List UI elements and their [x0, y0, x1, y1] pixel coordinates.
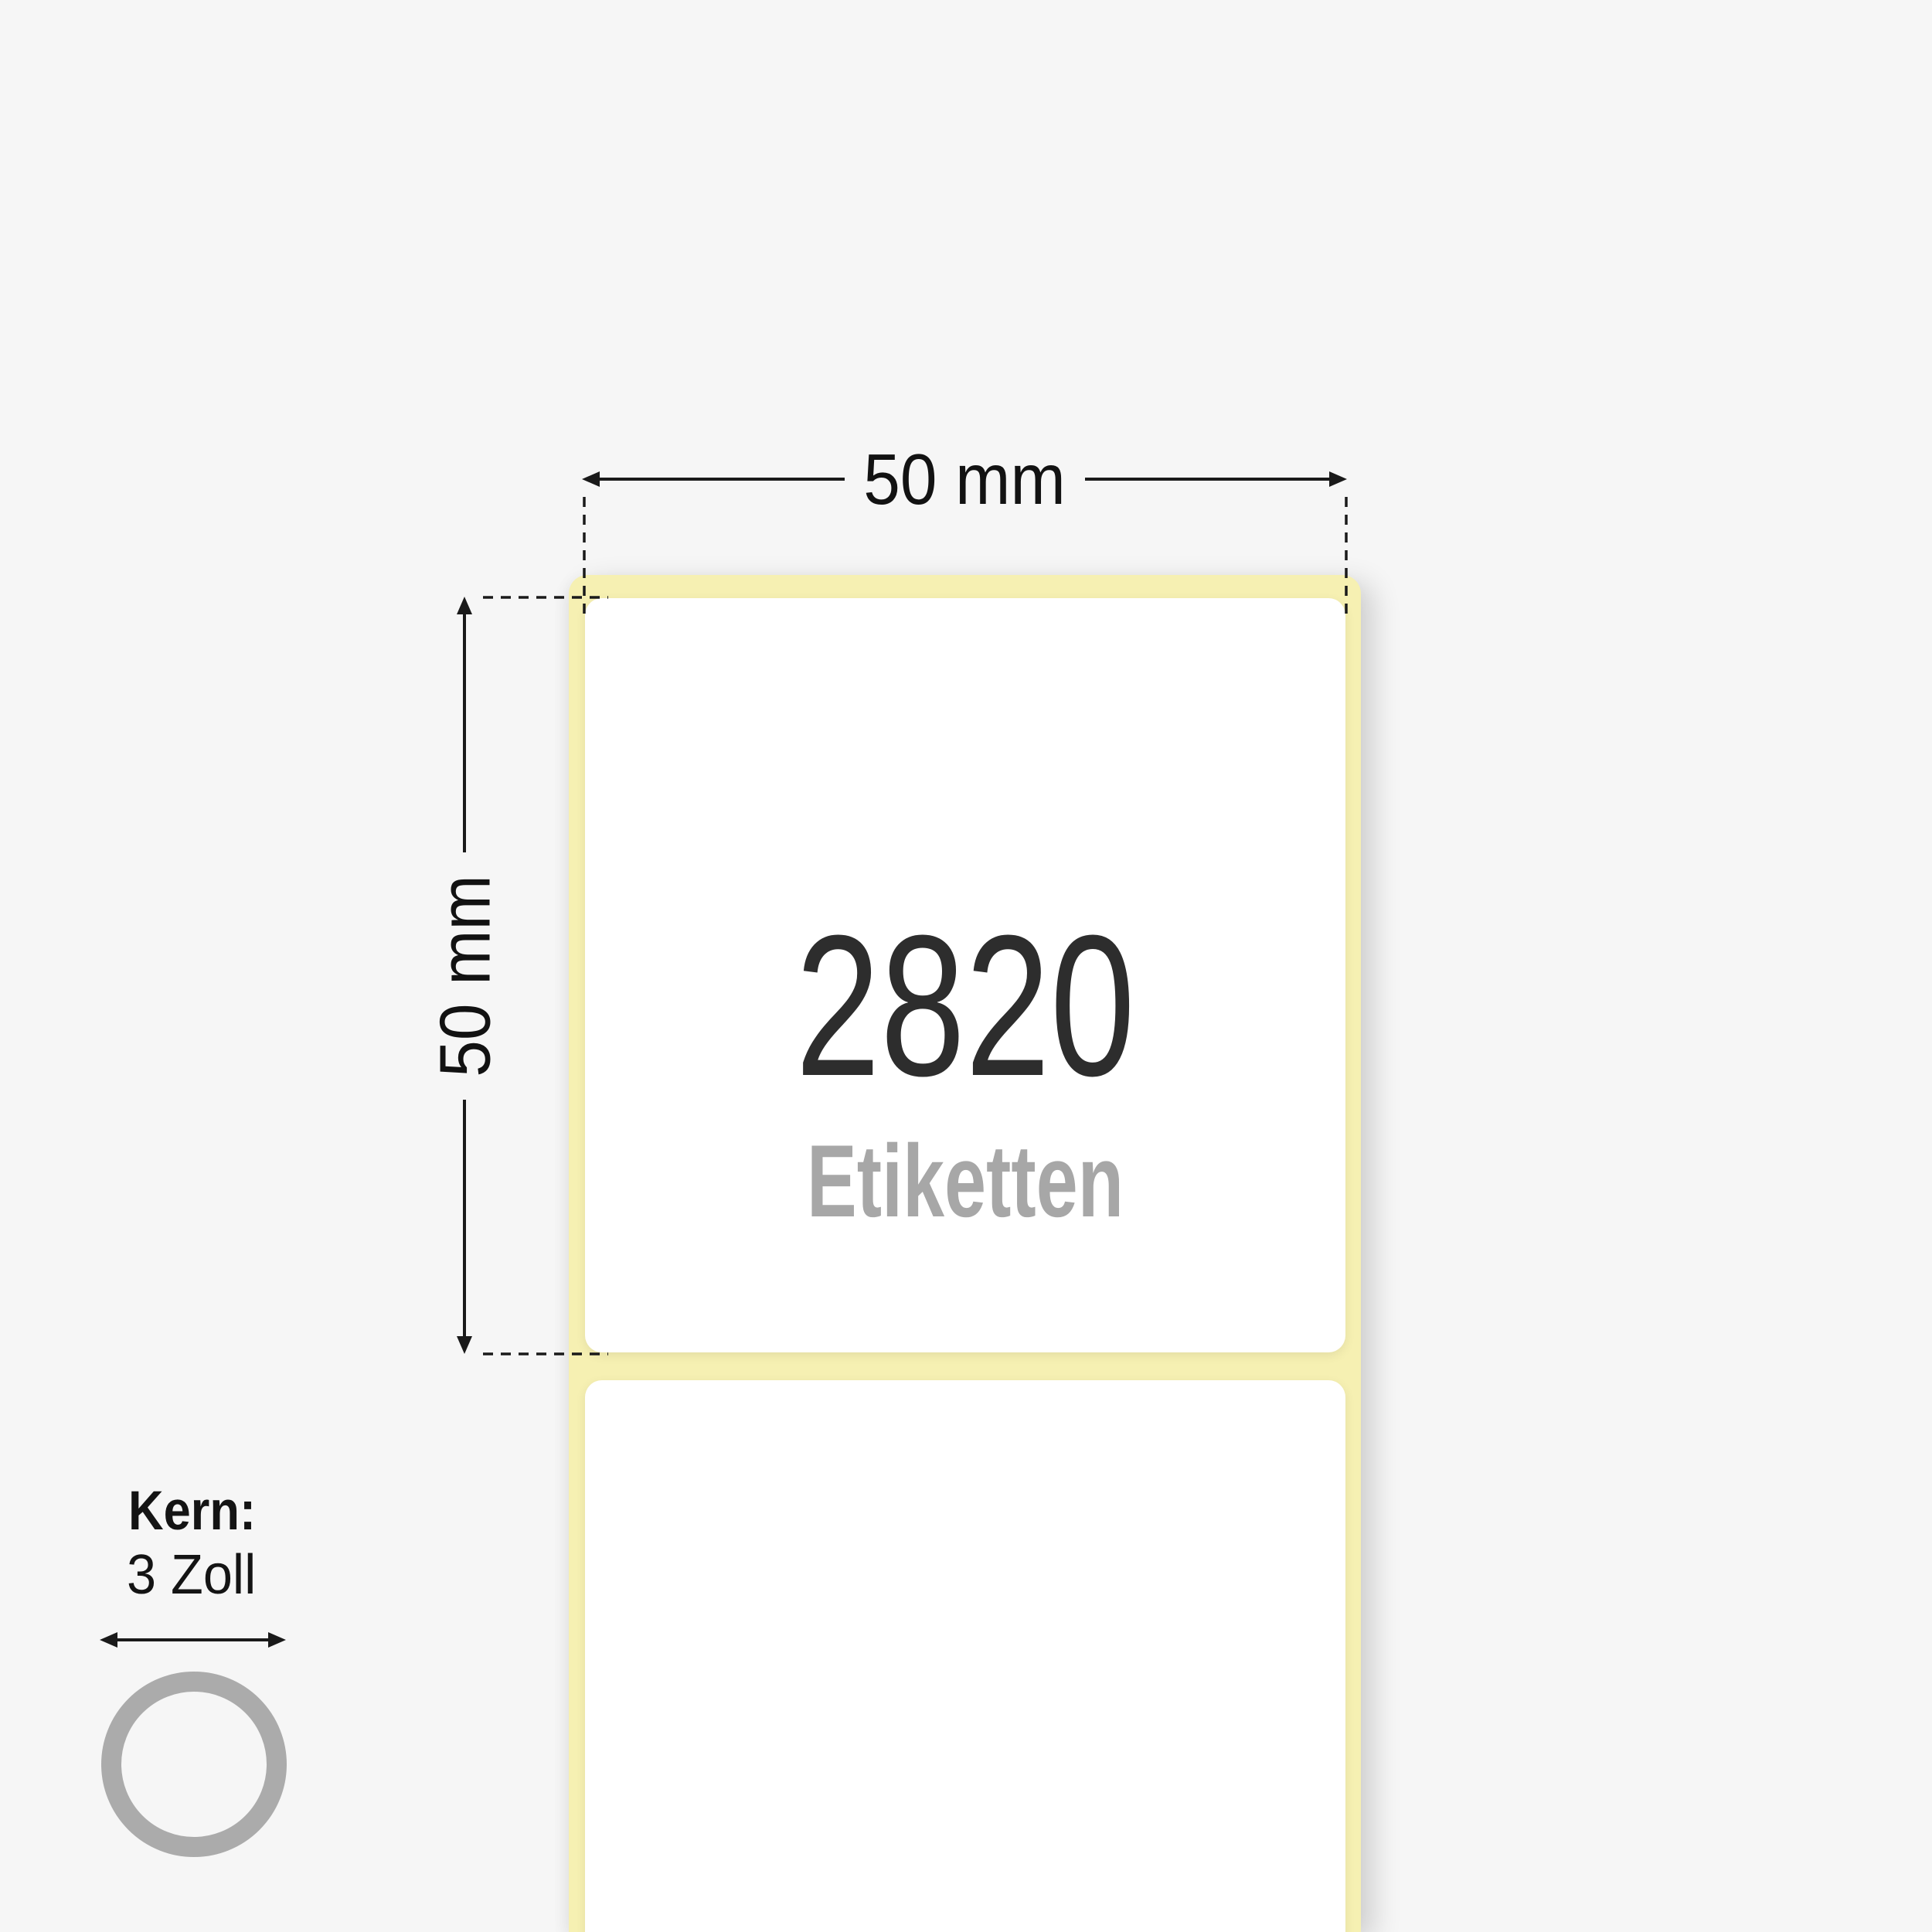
label-roll-liner: 2820 Etiketten	[569, 575, 1361, 1932]
label-below	[585, 1380, 1345, 1932]
core-arrowhead-right-icon	[268, 1632, 286, 1648]
label-top: 2820 Etiketten	[585, 598, 1345, 1352]
core-value: 3 Zoll	[127, 1547, 256, 1603]
product-illustration: 2820 Etiketten	[0, 0, 1932, 1932]
height-arrowhead-top-icon	[457, 597, 472, 614]
label-count: 2820	[676, 906, 1254, 1107]
height-dimension-label: 50 mm	[430, 875, 502, 1077]
width-arrowhead-right-icon	[1329, 471, 1347, 487]
height-arrowhead-bottom-icon	[457, 1336, 472, 1354]
width-arrowhead-left-icon	[582, 471, 600, 487]
width-dimension-label: 50 mm	[822, 444, 1107, 515]
core-arrowhead-left-icon	[100, 1632, 117, 1648]
core-title: Kern:	[128, 1484, 256, 1539]
core-annotation	[100, 1632, 286, 1847]
label-unit: Etiketten	[688, 1131, 1243, 1233]
core-ring-icon	[111, 1682, 277, 1847]
